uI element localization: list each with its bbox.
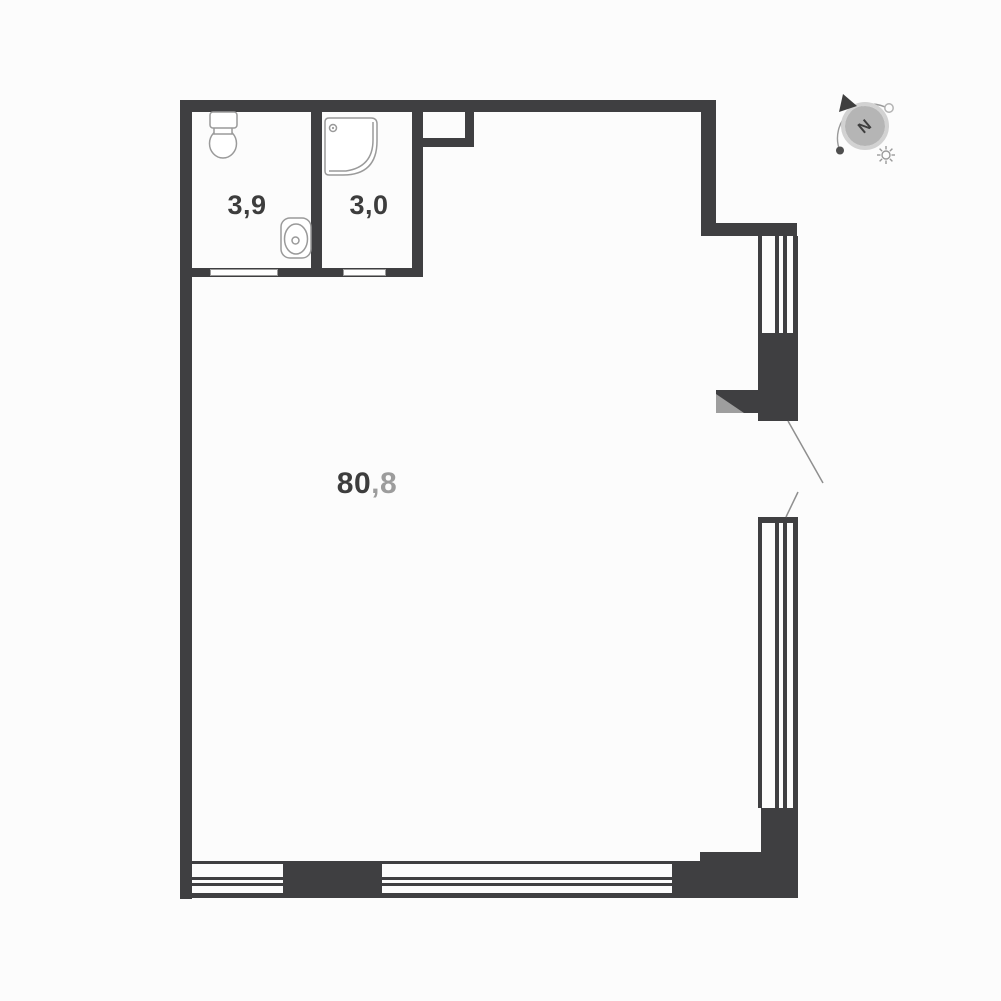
living-room-area-label: 80,8 (315, 466, 419, 502)
toilet-icon (210, 112, 238, 158)
bathroom-area-value: 3,9 (227, 190, 266, 221)
pilaster-shadow (716, 394, 744, 413)
opening-marker-line-2 (786, 492, 798, 517)
compass-icon: N (836, 94, 895, 164)
shower-room-area-label: 3,0 (326, 188, 412, 222)
sink-icon (281, 218, 311, 258)
living-room-area-whole: 80 (337, 467, 371, 501)
bathroom-area-label: 3,9 (204, 188, 290, 222)
floor-plan: N 3,9 3,0 80,8 (0, 0, 1001, 1001)
shower-room-area-value: 3,0 (349, 190, 388, 221)
sun-icon (877, 146, 895, 164)
plan-graphics: N (0, 0, 1001, 1001)
sunset-dot (836, 147, 844, 155)
opening-marker-line-1 (788, 421, 823, 483)
shower-tray-icon (325, 118, 377, 175)
sunrise-dot (885, 104, 893, 112)
living-room-area-fraction: ,8 (371, 467, 397, 501)
